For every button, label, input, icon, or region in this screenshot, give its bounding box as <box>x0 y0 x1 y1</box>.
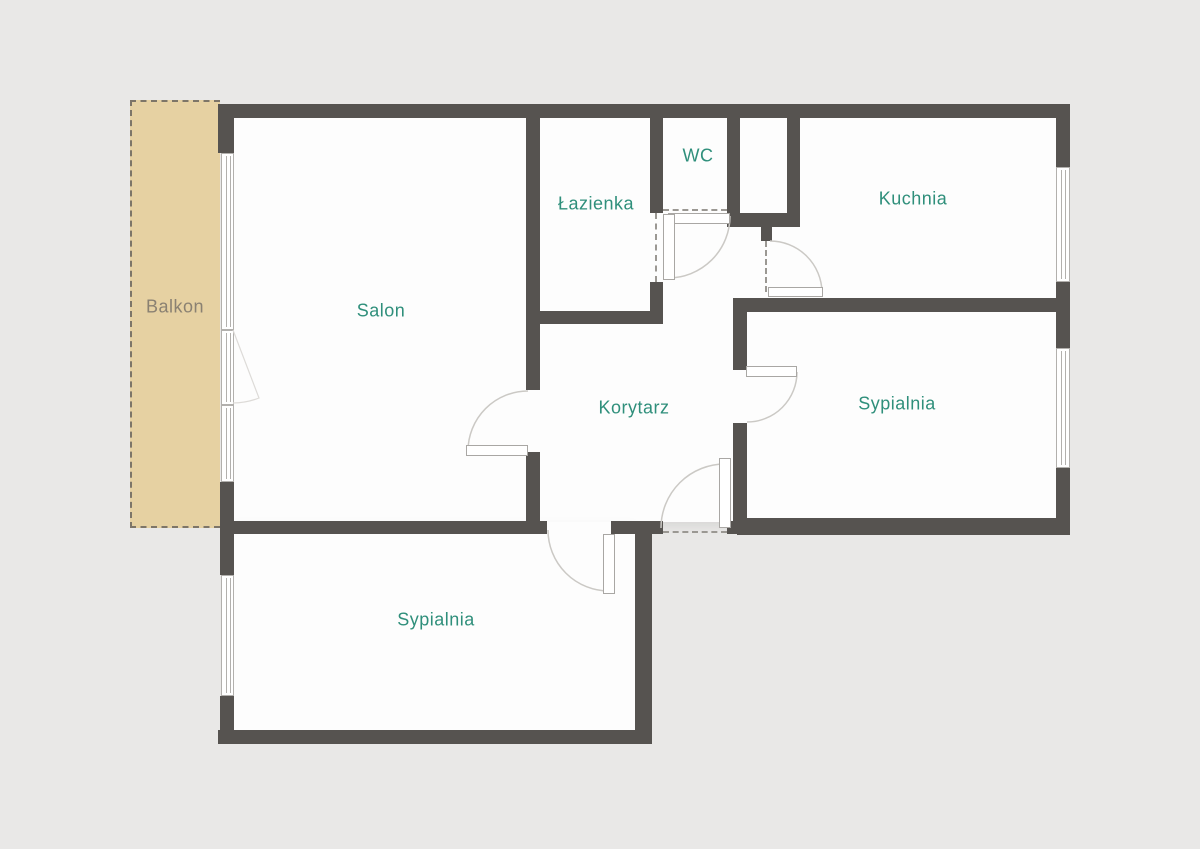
window-pane <box>226 408 231 479</box>
wall-left-mid-stub <box>220 482 234 575</box>
sypialnia-right-window <box>1056 348 1070 468</box>
wc-label: WC <box>683 146 714 167</box>
wall-sypialnia-right-bottom <box>737 518 1070 535</box>
balcony-door <box>221 330 234 405</box>
wall-salon-right-upper <box>526 104 540 390</box>
window-pane <box>1061 170 1066 279</box>
salon-window-upper <box>221 153 234 330</box>
wall-divider-salon-sypialnia <box>234 521 547 534</box>
salon-label: Salon <box>357 301 406 322</box>
korytarz-label: Korytarz <box>598 398 669 419</box>
sypialnia-bottom-door-panel <box>603 534 615 594</box>
sypialnia-right-door-panel <box>746 366 797 377</box>
sypialnia-bottom-window <box>221 575 234 696</box>
wall-left-top-stub <box>218 104 234 153</box>
wall-niche-bottom <box>740 213 800 227</box>
wall-top <box>218 104 1070 118</box>
wall-kuchnia-door-stub <box>761 227 772 241</box>
wall-sypialnia-right-left-lower <box>733 423 747 521</box>
sypialnia-right-label: Sypialnia <box>858 394 936 415</box>
wall-sypialnia-bottom-right <box>635 522 652 744</box>
wall-lazienka-bottom <box>526 311 663 324</box>
wc-door-panel <box>668 213 730 224</box>
wall-sypialnia-right-top <box>733 298 1070 312</box>
wall-wc-right <box>727 104 740 227</box>
window-pane <box>1061 351 1066 465</box>
window-pane <box>226 156 231 327</box>
kuchnia-door-opening <box>765 241 767 292</box>
entrance-door-panel <box>719 458 731 528</box>
wall-lazienka-right-stub <box>650 282 663 324</box>
kuchnia-window <box>1056 167 1070 282</box>
kuchnia-door-panel <box>768 287 823 297</box>
wall-salon-right-lower <box>526 452 540 522</box>
wall-bottom <box>218 730 652 744</box>
window-pane <box>226 333 231 402</box>
wall-lazienka-right-upper <box>650 104 663 213</box>
sypialnia-bottom-label: Sypialnia <box>397 610 475 631</box>
lazienka-door-panel <box>663 214 675 280</box>
floor-plan: Balkon Salon Łazienka WC Kuchnia Korytar… <box>0 0 1200 849</box>
wall-right-seg3 <box>1056 468 1070 535</box>
wall-corridor-bottom <box>611 521 663 534</box>
entrance-threshold <box>663 531 727 533</box>
balkon-label: Balkon <box>146 297 204 318</box>
wall-sypialnia-right-left-upper <box>733 298 747 370</box>
salon-window-lower <box>221 405 234 482</box>
kuchnia-label: Kuchnia <box>879 189 948 210</box>
lazienka-label: Łazienka <box>558 194 634 215</box>
wall-right-seg2 <box>1056 282 1070 348</box>
salon-door-panel <box>466 445 528 456</box>
window-pane <box>226 578 231 693</box>
lazienka-door-opening <box>655 213 657 282</box>
wall-niche-right <box>787 104 800 227</box>
wc-door-opening <box>663 209 727 211</box>
wall-right-seg1 <box>1056 104 1070 167</box>
